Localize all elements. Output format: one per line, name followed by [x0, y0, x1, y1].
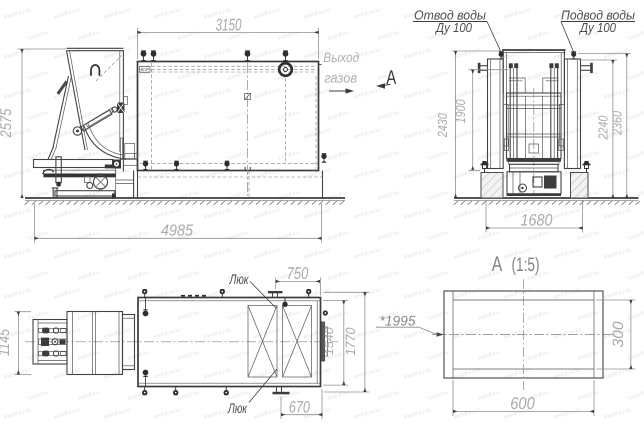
svg-text:750: 750 — [287, 264, 309, 283]
svg-text:А: А — [492, 253, 503, 276]
svg-text:600: 600 — [510, 394, 535, 413]
svg-text:4985: 4985 — [161, 223, 193, 240]
svg-text:*1995: *1995 — [380, 312, 416, 328]
svg-text:2240: 2240 — [596, 115, 611, 140]
svg-text:газов: газов — [324, 70, 357, 85]
svg-text:Люк: Люк — [227, 400, 248, 416]
svg-text:1540: 1540 — [322, 327, 336, 355]
svg-text:2360: 2360 — [609, 110, 624, 135]
svg-text:1145: 1145 — [0, 329, 13, 356]
svg-text:1900: 1900 — [453, 99, 468, 124]
svg-text:Ду 100: Ду 100 — [578, 20, 616, 35]
svg-text:2575: 2575 — [0, 108, 15, 138]
svg-text:Ду 100: Ду 100 — [434, 20, 472, 35]
svg-text:2430: 2430 — [435, 113, 450, 138]
svg-text:670: 670 — [289, 399, 311, 417]
svg-text:1770: 1770 — [343, 327, 358, 355]
svg-text:(1:5): (1:5) — [512, 254, 540, 276]
svg-text:1680: 1680 — [521, 211, 554, 229]
svg-text:Выход: Выход — [323, 50, 359, 65]
svg-text:300: 300 — [610, 321, 627, 348]
svg-text:А: А — [386, 67, 396, 89]
svg-text:Люк: Люк — [229, 271, 250, 287]
svg-text:3150: 3150 — [216, 15, 242, 34]
